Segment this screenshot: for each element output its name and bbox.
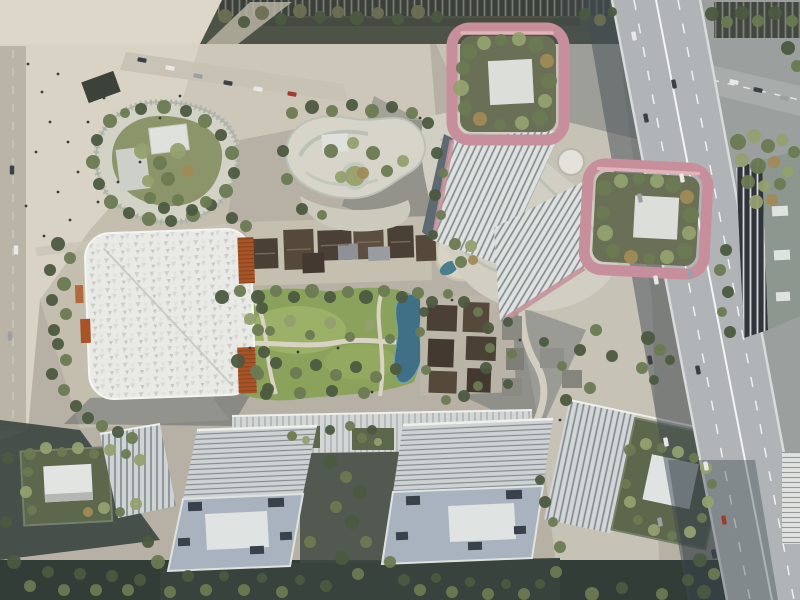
tree <box>682 226 696 240</box>
tree <box>42 566 54 578</box>
tree <box>482 322 494 334</box>
tree <box>766 194 778 206</box>
pedestrian <box>41 91 44 94</box>
tree <box>456 61 470 75</box>
tree <box>57 277 71 291</box>
tree <box>305 330 315 340</box>
tree <box>768 6 782 20</box>
tree <box>353 485 367 499</box>
tree <box>40 442 52 454</box>
tree <box>747 129 761 143</box>
pedestrian <box>337 347 340 350</box>
tree <box>665 177 681 193</box>
tree <box>302 436 310 444</box>
tree <box>722 286 734 298</box>
tree <box>234 285 246 297</box>
tree <box>396 291 408 303</box>
tree <box>2 452 14 464</box>
rooftop-unit <box>514 526 526 534</box>
tree <box>724 326 736 338</box>
tree <box>512 32 526 46</box>
tree <box>741 175 755 189</box>
tree <box>421 365 431 375</box>
tree <box>633 173 645 185</box>
tree <box>370 371 382 383</box>
tree <box>426 296 438 308</box>
tree <box>115 507 125 517</box>
tree <box>606 244 620 258</box>
tree <box>616 582 628 594</box>
tree <box>656 588 668 600</box>
tree <box>473 381 483 391</box>
tree <box>103 114 117 128</box>
tree <box>436 210 446 220</box>
tree <box>60 354 72 366</box>
tree <box>324 144 338 158</box>
tree <box>717 307 727 317</box>
tree <box>682 574 694 586</box>
tree <box>518 588 530 600</box>
pedestrian <box>249 347 252 350</box>
orange-louver-panel <box>80 319 91 343</box>
pedestrian <box>43 235 46 238</box>
tree <box>774 178 786 190</box>
pedestrian <box>371 391 374 394</box>
pedestrian <box>559 419 562 422</box>
tree <box>384 556 396 568</box>
tree <box>215 290 229 304</box>
tree <box>665 355 675 365</box>
tree <box>231 354 245 368</box>
tree <box>342 286 354 298</box>
tree <box>20 486 32 498</box>
tree <box>296 203 308 215</box>
tree <box>374 438 382 446</box>
tree <box>683 207 699 223</box>
tree <box>535 579 545 589</box>
rooftop-unit <box>776 292 790 302</box>
tree <box>378 285 390 297</box>
tree <box>503 317 513 327</box>
tree <box>422 117 434 129</box>
tree <box>0 516 12 528</box>
tree <box>633 515 643 525</box>
podium-roof-mark <box>558 149 584 175</box>
tree <box>335 551 349 565</box>
tree <box>372 7 384 19</box>
tree <box>786 15 798 27</box>
tree <box>594 14 606 26</box>
tree <box>240 220 252 232</box>
tree <box>120 108 130 118</box>
slab-block-2 <box>382 419 553 564</box>
flat-roof-pavilion <box>368 246 390 261</box>
pedestrian <box>69 219 72 222</box>
courtyard-house <box>428 371 457 394</box>
tree <box>144 192 156 204</box>
tree <box>186 204 198 216</box>
tree <box>468 255 478 265</box>
courtyard-house <box>427 339 454 368</box>
rooftop-unit <box>178 538 190 546</box>
tree <box>275 13 287 25</box>
tree <box>350 361 362 373</box>
tree <box>58 384 70 396</box>
tree <box>142 212 156 226</box>
tree <box>702 496 714 508</box>
tree <box>548 517 558 527</box>
tree <box>335 171 347 183</box>
tree <box>515 116 529 130</box>
tree <box>226 212 238 224</box>
tree <box>324 291 336 303</box>
tree <box>134 574 146 586</box>
tree <box>200 584 212 596</box>
tree <box>323 455 337 469</box>
tree <box>412 287 424 299</box>
tree <box>287 431 297 441</box>
tree <box>134 454 146 466</box>
tree <box>82 412 94 424</box>
tree <box>96 420 108 432</box>
tree <box>57 447 67 457</box>
tree <box>218 9 232 23</box>
gridshell-canopy-hall <box>73 229 259 399</box>
tree <box>256 302 268 314</box>
tree <box>624 496 636 508</box>
tree <box>649 375 659 385</box>
tree <box>290 367 302 379</box>
tree <box>281 173 293 185</box>
tree <box>749 195 763 209</box>
tree <box>532 110 548 126</box>
tree <box>347 137 359 149</box>
tree <box>7 555 21 569</box>
tree <box>24 448 36 460</box>
slab-roof-stripes <box>393 419 553 492</box>
tree <box>27 505 37 515</box>
tree <box>540 54 554 68</box>
tree <box>90 584 102 596</box>
tree <box>654 344 666 356</box>
rooftop-unit <box>468 542 482 550</box>
tree <box>276 586 288 598</box>
tree <box>714 264 726 276</box>
east-edge-building-ribs <box>782 452 800 544</box>
tree <box>164 586 176 598</box>
tree <box>286 107 298 119</box>
tree <box>325 425 335 435</box>
tree <box>443 289 453 299</box>
tree <box>104 195 118 209</box>
tree <box>64 252 76 264</box>
tree <box>350 11 364 25</box>
tree <box>270 357 282 369</box>
tree <box>104 444 116 456</box>
pedestrian <box>57 73 60 76</box>
tree <box>215 129 227 141</box>
tree <box>359 290 373 304</box>
tree <box>345 332 355 342</box>
tree <box>106 570 118 582</box>
tree <box>535 475 545 485</box>
tree <box>238 584 250 596</box>
tree <box>294 387 306 399</box>
rooftop-unit <box>772 206 789 217</box>
tree <box>693 553 707 567</box>
tree <box>574 344 586 356</box>
tree <box>74 568 86 580</box>
tree <box>121 449 131 459</box>
tree <box>501 579 511 589</box>
tree <box>381 165 393 177</box>
rooftop-unit <box>506 490 522 500</box>
tree <box>636 362 648 374</box>
tree <box>72 442 84 454</box>
tree <box>122 584 134 596</box>
tree <box>158 202 170 214</box>
tree <box>650 174 664 188</box>
tree <box>142 175 154 187</box>
tree <box>782 166 794 178</box>
pedestrian <box>451 299 454 302</box>
tree <box>134 143 150 159</box>
tree <box>182 570 194 582</box>
tree <box>91 134 103 146</box>
tree <box>153 156 167 170</box>
tree <box>579 8 591 20</box>
tree <box>332 6 344 18</box>
tree <box>557 361 567 371</box>
tree <box>596 180 612 196</box>
pedestrian <box>77 171 80 174</box>
tree <box>142 536 154 548</box>
tree <box>324 317 336 329</box>
tree <box>60 308 72 320</box>
tree <box>539 337 549 347</box>
tree <box>584 382 596 394</box>
tree <box>258 346 270 358</box>
tree <box>346 99 358 111</box>
tree <box>135 103 147 115</box>
tree <box>172 194 184 206</box>
flat-roof-pavilion <box>338 243 359 260</box>
tree <box>428 230 438 240</box>
pedestrian <box>57 191 60 194</box>
tree <box>305 100 319 114</box>
tree <box>768 156 780 168</box>
tree <box>590 324 602 336</box>
tree <box>352 568 364 580</box>
tree <box>86 155 100 169</box>
tree <box>473 112 487 126</box>
pedestrian <box>159 117 162 120</box>
tree <box>648 524 660 536</box>
tree <box>23 467 33 477</box>
tree <box>560 394 572 406</box>
pedestrian <box>139 161 142 164</box>
tree <box>660 250 674 264</box>
tree <box>397 155 409 167</box>
tree <box>365 104 379 118</box>
pedestrian <box>297 351 300 354</box>
tree <box>477 36 491 50</box>
tree <box>596 206 610 220</box>
pedestrian <box>419 117 422 120</box>
tree <box>538 94 552 108</box>
tree <box>684 526 696 538</box>
tree <box>112 426 124 438</box>
tower-a-roof-pad <box>488 59 534 105</box>
rooftop-unit <box>268 498 284 508</box>
tree <box>680 190 694 204</box>
tree <box>735 6 749 20</box>
tree <box>606 350 618 362</box>
tree <box>672 446 684 458</box>
tree <box>431 147 443 159</box>
tree <box>465 577 475 587</box>
tree <box>48 324 60 336</box>
tree <box>446 586 458 598</box>
tree <box>667 531 677 541</box>
tree <box>541 73 557 89</box>
tree <box>641 331 655 345</box>
tree <box>182 165 194 177</box>
tree <box>70 400 82 412</box>
pedestrian <box>117 181 120 184</box>
tree <box>438 168 448 178</box>
tree <box>411 5 425 19</box>
tree <box>550 566 562 578</box>
tree <box>260 388 272 400</box>
tree <box>640 438 652 450</box>
tree <box>345 515 359 529</box>
tree <box>83 507 93 517</box>
tree <box>157 100 171 114</box>
tree <box>752 15 764 27</box>
tree <box>708 568 720 580</box>
tree <box>429 189 441 201</box>
tree <box>597 225 613 241</box>
roof-pad <box>205 511 269 550</box>
tree <box>624 250 638 264</box>
pedestrian <box>35 151 38 154</box>
tree <box>251 290 265 304</box>
tree <box>326 385 338 397</box>
tree <box>304 536 316 548</box>
pedestrian <box>97 201 100 204</box>
tree <box>528 37 544 53</box>
tree <box>730 134 746 150</box>
tree <box>58 584 70 596</box>
tree <box>453 80 469 96</box>
tree <box>465 240 477 252</box>
tree <box>180 105 192 117</box>
tree <box>24 580 36 592</box>
tree <box>270 285 282 297</box>
tree <box>46 368 58 380</box>
tree <box>330 369 342 381</box>
rooftop-unit <box>250 546 264 554</box>
tree <box>750 158 766 174</box>
pedestrian <box>103 97 106 100</box>
tree <box>449 238 461 250</box>
tree <box>707 479 717 489</box>
rooftop-unit <box>406 496 420 505</box>
tree <box>238 16 250 28</box>
tree <box>244 313 256 325</box>
tree <box>170 143 186 159</box>
office-cube <box>562 370 582 388</box>
tree <box>295 575 305 585</box>
tree <box>414 584 426 596</box>
tree <box>320 580 332 592</box>
tree <box>461 44 477 60</box>
tree <box>776 134 788 146</box>
tree <box>385 334 395 344</box>
courtyard-house <box>302 253 325 274</box>
tree <box>367 425 377 435</box>
tree <box>677 243 693 259</box>
tree <box>52 338 64 350</box>
tree <box>360 536 372 548</box>
tree <box>507 349 517 359</box>
tree <box>788 146 800 158</box>
tree <box>358 387 370 399</box>
tree <box>98 502 110 514</box>
tree <box>330 501 342 513</box>
tree <box>89 449 99 459</box>
tree <box>310 359 322 371</box>
tree <box>614 174 628 188</box>
tree <box>345 421 355 431</box>
roof-pad <box>448 503 516 542</box>
vehicle <box>10 166 14 175</box>
tree <box>495 34 507 46</box>
tree <box>51 237 65 251</box>
tree <box>225 146 239 160</box>
tree <box>458 101 472 115</box>
vehicle <box>8 332 12 341</box>
tree <box>44 264 56 276</box>
tree <box>539 496 551 508</box>
tree <box>340 471 352 483</box>
tree <box>431 573 441 583</box>
tree <box>721 16 733 28</box>
tree <box>314 11 326 23</box>
tree <box>228 167 240 179</box>
tree <box>621 479 631 489</box>
tree <box>288 291 300 303</box>
tree <box>419 307 429 317</box>
orange-louver-panel <box>75 285 84 303</box>
tree <box>255 6 269 20</box>
tree <box>364 319 376 331</box>
pedestrian <box>27 63 30 66</box>
courtyard-house <box>427 305 458 332</box>
tree <box>123 207 135 219</box>
plaza-northwest <box>0 0 222 44</box>
tree <box>624 444 636 456</box>
tree <box>689 453 699 463</box>
tree <box>761 139 775 153</box>
aerial-rendering: Bird's-eye architectural rendering of a … <box>0 0 800 600</box>
tree <box>126 432 138 444</box>
tree <box>473 307 483 317</box>
tree <box>697 585 711 599</box>
tree <box>705 7 719 21</box>
pedestrian <box>49 121 52 124</box>
